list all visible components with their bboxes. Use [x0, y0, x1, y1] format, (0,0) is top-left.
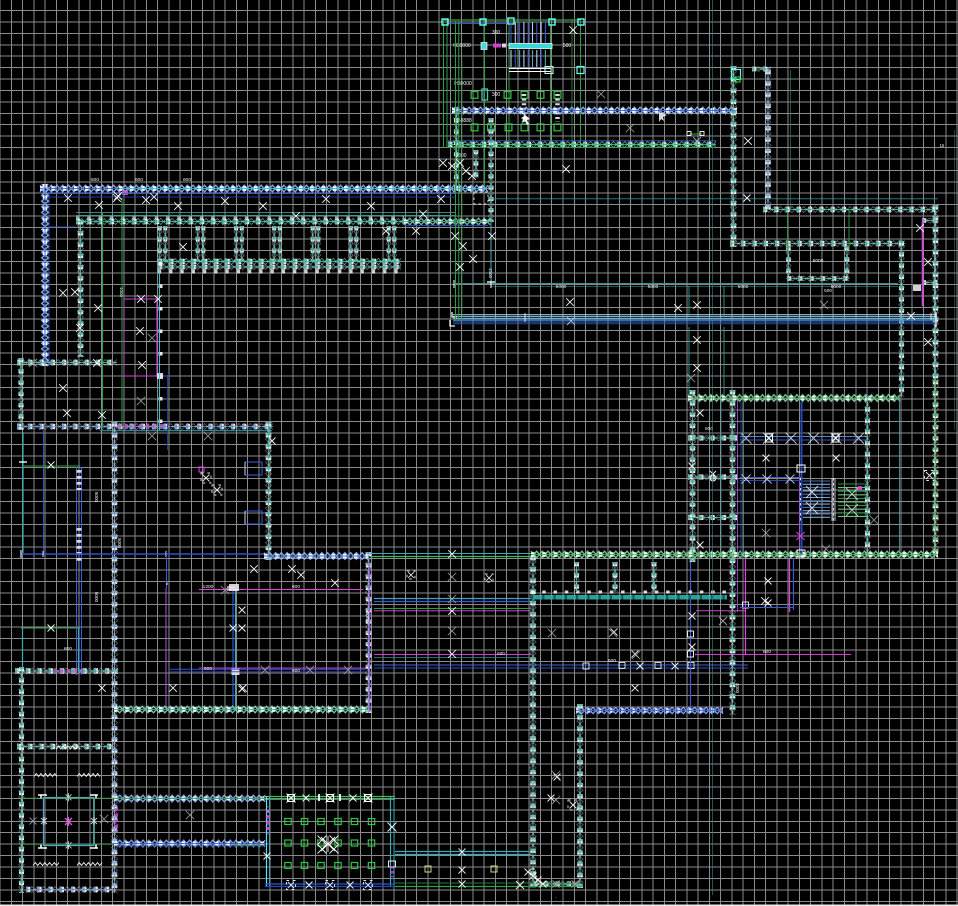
svg-text:..: ..	[555, 894, 557, 899]
svg-text:600: 600	[292, 584, 300, 590]
svg-text:1200: 1200	[203, 584, 214, 590]
svg-text:600: 600	[763, 649, 771, 655]
svg-text:3000: 3000	[735, 683, 740, 694]
svg-text:600: 600	[183, 177, 191, 183]
svg-text:5000: 5000	[648, 284, 659, 290]
svg-text:5000: 5000	[94, 592, 99, 603]
svg-text:5000: 5000	[94, 492, 99, 503]
svg-text:15: 15	[940, 143, 945, 148]
svg-text:5000: 5000	[117, 538, 122, 549]
svg-text:500: 500	[563, 43, 572, 49]
svg-text:5000: 5000	[556, 284, 567, 290]
svg-text:600: 600	[91, 177, 99, 183]
svg-text:600: 600	[608, 658, 616, 664]
svg-text:5000: 5000	[365, 612, 370, 623]
svg-text:H30000: H30000	[454, 81, 472, 87]
svg-text:5000: 5000	[831, 284, 842, 290]
svg-text:600: 600	[135, 177, 143, 183]
svg-text:300: 300	[492, 92, 501, 98]
svg-text:1300: 1300	[455, 153, 466, 159]
svg-text:600: 600	[292, 668, 300, 674]
svg-text:5000: 5000	[738, 284, 749, 290]
svg-text:600: 600	[497, 651, 505, 656]
svg-text:600: 600	[64, 646, 72, 652]
svg-text:300: 300	[492, 30, 501, 36]
svg-text:H58888: H58888	[454, 118, 472, 124]
svg-text:6000: 6000	[813, 258, 824, 264]
svg-text:500: 500	[204, 666, 212, 672]
